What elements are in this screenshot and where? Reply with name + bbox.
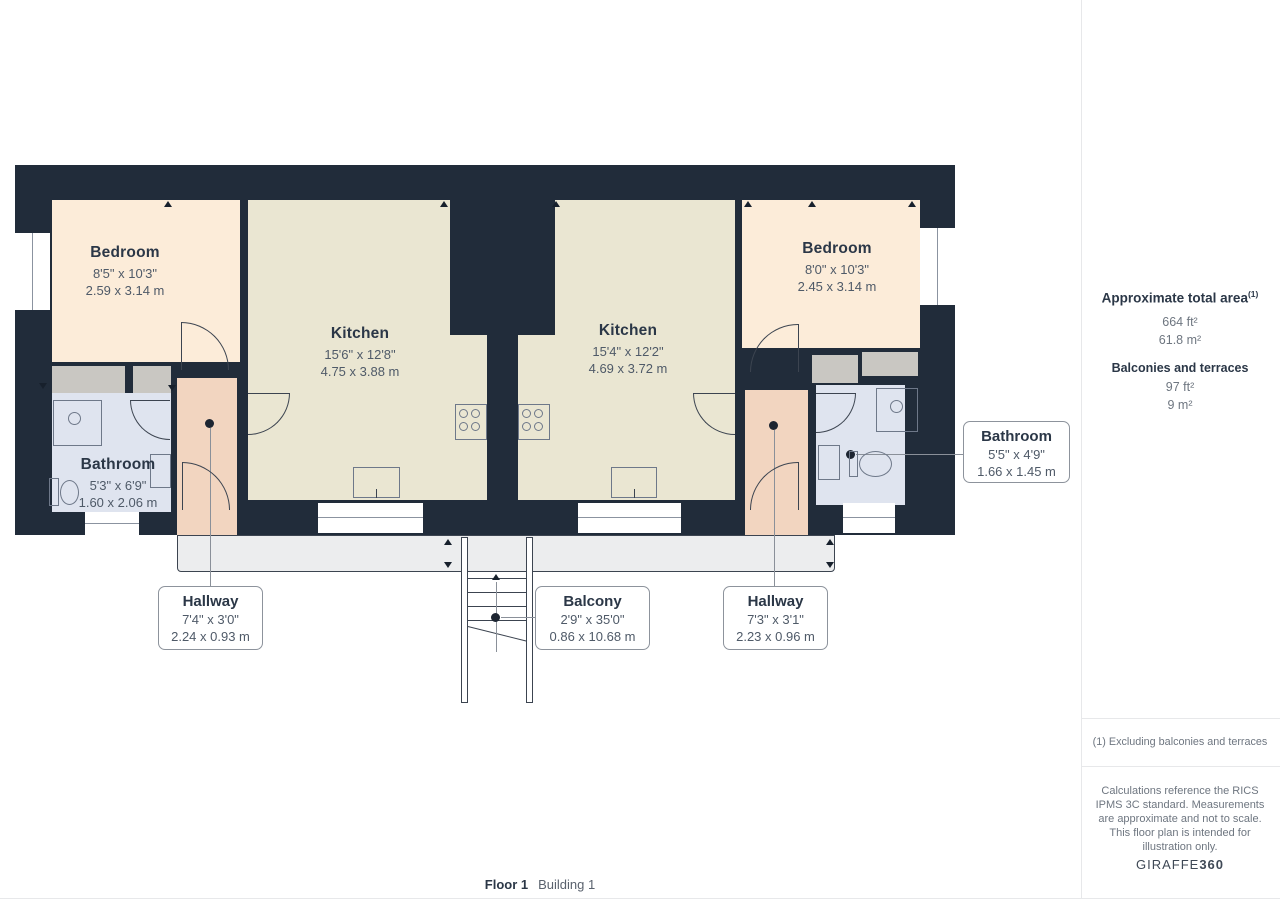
balconies-heading: Balconies and terraces xyxy=(1086,361,1274,375)
total-area-label: Approximate total area xyxy=(1102,291,1248,306)
wall-arrow-icon xyxy=(168,385,176,391)
room-name: Bedroom xyxy=(747,240,927,258)
room-dims-ft: 7'3" x 3'1" xyxy=(724,612,827,629)
sink-bathroom-right xyxy=(818,445,840,480)
connector-balcony xyxy=(501,617,536,618)
shower-drain-right-icon xyxy=(890,400,903,413)
sidebar-divider xyxy=(1081,0,1082,898)
toilet-tank-right xyxy=(849,451,858,477)
connector-dot-hallway-left xyxy=(205,419,214,428)
window-bottom-bathroom-left-glassline xyxy=(85,523,139,524)
room-name: Kitchen xyxy=(270,325,450,343)
room-name: Bathroom xyxy=(38,456,198,474)
closet-right-b xyxy=(862,352,918,376)
page-bottom-border xyxy=(0,898,1280,899)
label-bedroom-right: Bedroom 8'0" x 10'3" 2.45 x 3.14 m xyxy=(747,240,927,295)
total-area-m: 61.8 m² xyxy=(1086,333,1274,347)
window-right-glassline xyxy=(937,228,938,305)
wall-arrow-icon xyxy=(39,383,47,389)
room-dims-m: 4.75 x 3.88 m xyxy=(270,364,450,381)
wall-arrow-icon xyxy=(826,562,834,568)
room-name: Bathroom xyxy=(964,428,1069,445)
building-label: Building 1 xyxy=(538,877,595,892)
wall-arrow-icon xyxy=(444,539,452,545)
stairs-rail-right xyxy=(526,537,533,703)
wall-arrow-icon xyxy=(908,201,916,207)
wall-arrow-icon xyxy=(440,201,448,207)
room-dims-m: 2.59 x 3.14 m xyxy=(35,283,215,300)
room-dims-m: 4.69 x 3.72 m xyxy=(538,361,718,378)
room-dims-ft: 15'4" x 12'2" xyxy=(538,344,718,361)
total-area-ft: 664 ft² xyxy=(1086,315,1274,329)
stair-tread xyxy=(468,592,526,593)
toilet-bowl-right xyxy=(859,451,892,477)
callout-balcony: Balcony 2'9" x 35'0" 0.86 x 10.68 m xyxy=(535,586,650,650)
label-bedroom-left: Bedroom 8'5" x 10'3" 2.59 x 3.14 m xyxy=(35,244,215,299)
sidebar-divider-1 xyxy=(1081,718,1280,719)
footnote-text: (1) Excluding balconies and terraces xyxy=(1083,736,1277,748)
connector-dot-balcony xyxy=(491,613,500,622)
closet-left-b xyxy=(133,366,171,393)
room-name: Bedroom xyxy=(35,244,215,262)
total-area-heading: Approximate total area(1) xyxy=(1086,289,1274,306)
balconies-ft: 97 ft² xyxy=(1086,380,1274,394)
floorplan-page: Bedroom 8'5" x 10'3" 2.59 x 3.14 m Kitch… xyxy=(0,0,1280,905)
room-dims-m: 2.45 x 3.14 m xyxy=(747,279,927,296)
window-bottom-kitchen-right-glassline xyxy=(578,517,681,518)
wall-arrow-icon xyxy=(164,201,172,207)
room-dims-ft: 2'9" x 35'0" xyxy=(536,612,649,629)
room-name: Balcony xyxy=(536,593,649,610)
room-dims-m: 1.66 x 1.45 m xyxy=(964,464,1069,481)
closet-right-a xyxy=(812,355,858,383)
sidebar-divider-2 xyxy=(1081,766,1280,767)
label-bathroom-left: Bathroom 5'3" x 6'9" 1.60 x 2.06 m xyxy=(38,456,198,511)
balcony-deck xyxy=(177,535,835,572)
sink-kitchen-right-divider xyxy=(634,489,635,498)
brand-logo: GIRAFFE360 xyxy=(1086,857,1274,872)
window-bottom-bathroom-right xyxy=(843,503,895,533)
window-left-glassline xyxy=(32,233,33,310)
callout-hallway-left: Hallway 7'4" x 3'0" 2.24 x 0.93 m xyxy=(158,586,263,650)
sink-kitchen-left-divider xyxy=(376,489,377,498)
burner-icon xyxy=(522,409,531,418)
burner-icon xyxy=(534,409,543,418)
room-dims-ft: 8'5" x 10'3" xyxy=(35,266,215,283)
label-kitchen-left: Kitchen 15'6" x 12'8" 4.75 x 3.88 m xyxy=(270,325,450,380)
balconies-m: 9 m² xyxy=(1086,398,1274,412)
stair-tread xyxy=(468,606,526,607)
stair-up-arrow-icon xyxy=(492,574,500,580)
door-leaf-kitchen-right xyxy=(693,393,735,394)
room-dims-ft: 7'4" x 3'0" xyxy=(159,612,262,629)
room-name: Hallway xyxy=(159,593,262,610)
footer: Floor 1 Building 1 xyxy=(420,877,660,892)
wall-arrow-icon xyxy=(744,201,752,207)
door-leaf-bedroom-right xyxy=(798,324,799,372)
brand-suffix: 360 xyxy=(1199,857,1224,872)
window-bottom-kitchen-left xyxy=(318,503,423,533)
room-dims-ft: 8'0" x 10'3" xyxy=(747,262,927,279)
door-leaf-entrance-right xyxy=(798,462,799,510)
wall-arrow-icon xyxy=(826,539,834,545)
shower-drain-left-icon xyxy=(68,412,81,425)
door-leaf-bedroom-left xyxy=(181,322,182,370)
stairs-rail-left xyxy=(461,537,468,703)
label-kitchen-right: Kitchen 15'4" x 12'2" 4.69 x 3.72 m xyxy=(538,322,718,377)
room-dims-m: 2.23 x 0.96 m xyxy=(724,629,827,646)
room-dims-ft: 15'6" x 12'8" xyxy=(270,347,450,364)
floor-label: Floor 1 xyxy=(485,877,528,892)
burner-icon xyxy=(459,409,468,418)
wall-arrow-icon xyxy=(552,201,560,207)
brand-name: GIRAFFE xyxy=(1136,857,1199,872)
room-dims-ft: 5'5" x 4'9" xyxy=(964,447,1069,464)
door-leaf-kitchen-left xyxy=(248,393,290,394)
room-dims-ft: 5'3" x 6'9" xyxy=(38,478,198,495)
window-bottom-bathroom-right-glassline xyxy=(843,517,895,518)
total-area-footnote-ref: (1) xyxy=(1248,289,1258,299)
connector-dot-hallway-right xyxy=(769,421,778,430)
room-name: Hallway xyxy=(724,593,827,610)
room-name: Kitchen xyxy=(538,322,718,340)
wall-arrow-icon xyxy=(808,201,816,207)
room-dims-m: 0.86 x 10.68 m xyxy=(536,629,649,646)
burner-icon xyxy=(534,422,543,431)
closet-left-a xyxy=(52,366,125,393)
burner-icon xyxy=(522,422,531,431)
burner-icon xyxy=(471,409,480,418)
room-dims-m: 2.24 x 0.93 m xyxy=(159,629,262,646)
burner-icon xyxy=(471,422,480,431)
door-leaf-bathroom-left xyxy=(130,400,170,401)
window-bottom-kitchen-right xyxy=(578,503,681,533)
disclaimer-text: Calculations reference the RICS IPMS 3C … xyxy=(1093,784,1267,854)
door-leaf-bathroom-right xyxy=(816,393,856,394)
wall-arrow-icon xyxy=(444,562,452,568)
window-bottom-kitchen-left-glassline xyxy=(318,517,423,518)
callout-hallway-right: Hallway 7'3" x 3'1" 2.23 x 0.96 m xyxy=(723,586,828,650)
burner-icon xyxy=(459,422,468,431)
room-dims-m: 1.60 x 2.06 m xyxy=(38,495,198,512)
callout-bathroom-right: Bathroom 5'5" x 4'9" 1.66 x 1.45 m xyxy=(963,421,1070,483)
